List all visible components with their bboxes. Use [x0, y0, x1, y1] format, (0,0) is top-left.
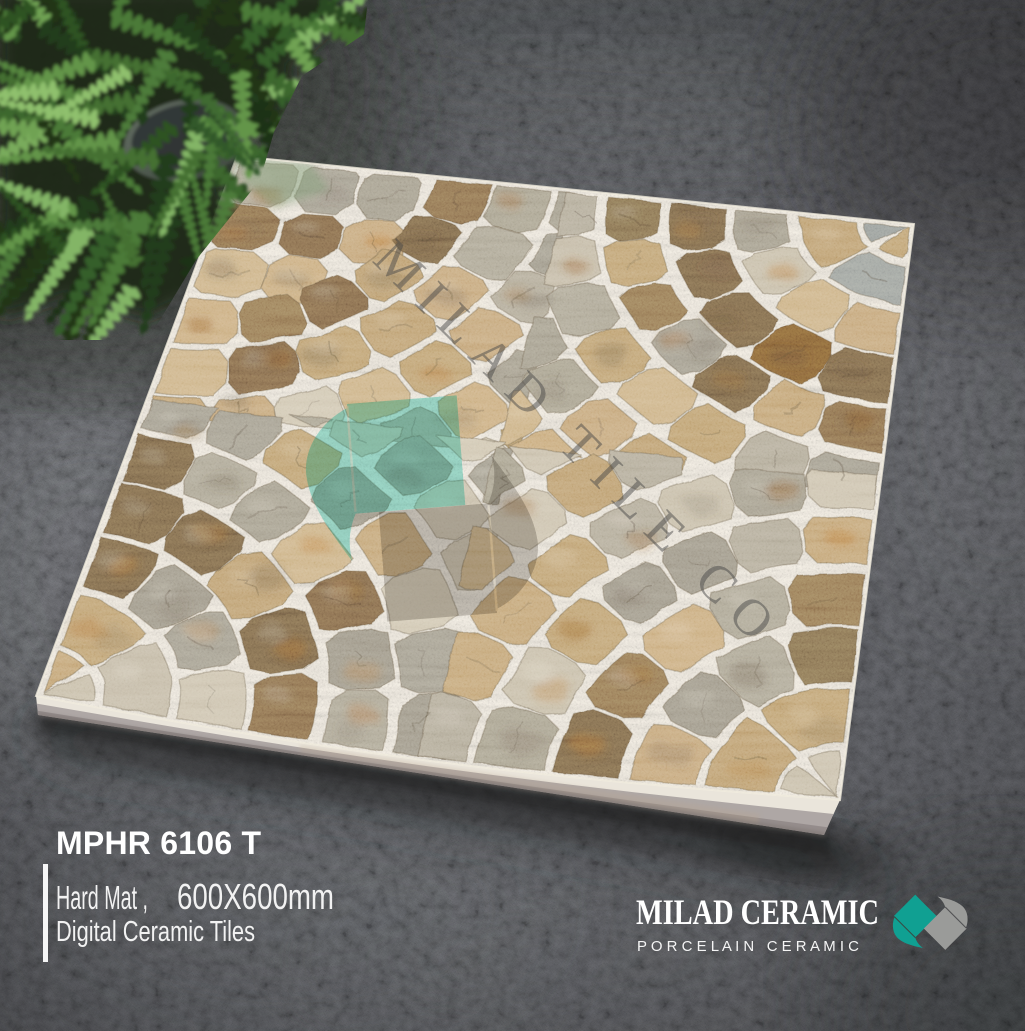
svg-text:600X600mm: 600X600mm: [177, 876, 334, 917]
svg-text:P O R C E L A I N C E R A M: P O R C E L A I N C E R A M I C: [637, 938, 859, 955]
svg-text:Hard Mat ,: Hard Mat ,: [56, 879, 148, 916]
svg-text:Digital Ceramic Tiles: Digital Ceramic Tiles: [56, 916, 255, 948]
svg-text:MPHR 6106 T: MPHR 6106 T: [56, 825, 261, 861]
svg-text:MILAD CERAMIC: MILAD CERAMIC: [636, 892, 879, 932]
